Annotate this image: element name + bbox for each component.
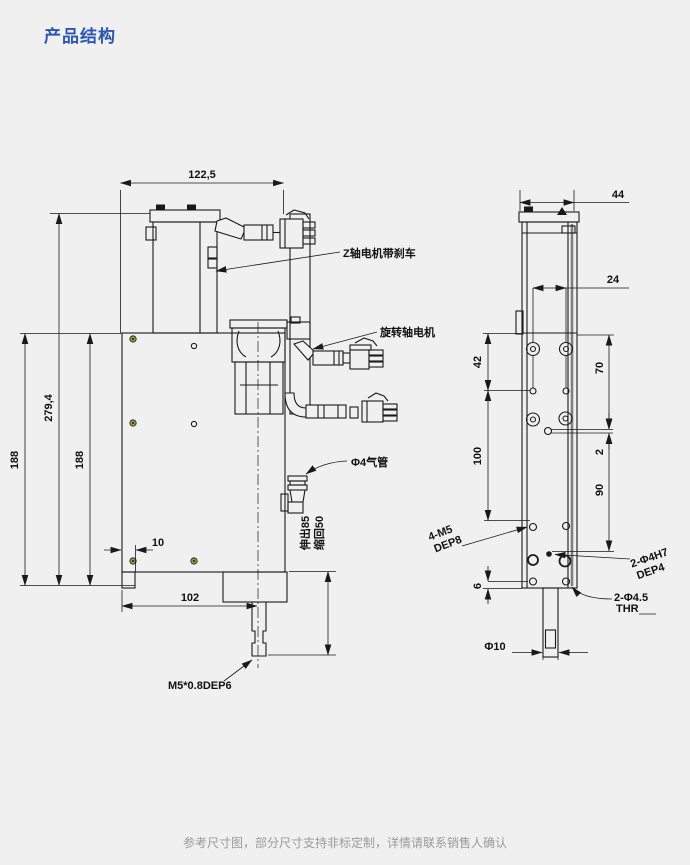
svg-text:188: 188 <box>74 451 86 469</box>
front-label-z-motor: Z轴电机带刹车 <box>216 246 416 271</box>
front-view: 122,5 188 279,4 188 10 <box>9 169 435 692</box>
svg-text:旋转轴电机: 旋转轴电机 <box>379 325 435 339</box>
side-dim-right-stack: 70 2 90 <box>552 335 614 552</box>
page: 产品结构 <box>0 0 690 865</box>
svg-text:102: 102 <box>181 592 199 604</box>
svg-text:279,4: 279,4 <box>43 393 55 421</box>
svg-text:44: 44 <box>612 189 625 201</box>
side-sensor-pin <box>545 428 614 435</box>
svg-text:缩回50: 缩回50 <box>312 516 326 550</box>
side-body <box>522 222 577 588</box>
svg-text:24: 24 <box>607 274 620 286</box>
front-label-shaft-thread: M5*0.8DEP6 <box>168 660 252 692</box>
svg-text:THR: THR <box>616 603 639 615</box>
svg-text:2: 2 <box>594 449 606 455</box>
front-label-rotary-motor: 旋转轴电机 <box>313 325 435 349</box>
side-dim-width-top: 44 <box>520 189 629 211</box>
front-dim-offset-left: 10 <box>104 537 164 572</box>
side-dim-shaft-dia: Φ10 <box>484 641 588 660</box>
front-dim-width-top: 122,5 <box>121 169 284 333</box>
side-label-thru-holes: 2-Φ4.5 THR <box>572 587 656 615</box>
svg-text:6: 6 <box>472 583 484 589</box>
front-z-motor-cable <box>215 210 315 248</box>
side-holes <box>527 343 573 586</box>
svg-text:90: 90 <box>594 484 606 496</box>
svg-text:Z轴电机带刹车: Z轴电机带刹车 <box>343 246 416 260</box>
front-dim-width-bottom: 102 <box>122 590 257 612</box>
technical-drawing: 122,5 188 279,4 188 10 <box>0 0 690 810</box>
svg-text:42: 42 <box>472 356 484 368</box>
front-dim-stroke: 伸出85 缩回50 <box>268 516 336 655</box>
side-top-cap <box>519 212 579 222</box>
front-rotary-motor <box>230 317 310 414</box>
side-dim-bottom-offset: 6 <box>472 566 528 604</box>
front-shaft <box>252 602 266 656</box>
svg-text:M5*0.8DEP6: M5*0.8DEP6 <box>168 680 232 692</box>
front-label-air-tube: Φ4气管 <box>306 455 388 474</box>
side-label-tap-holes: 4-M5 DEP8 <box>427 522 527 556</box>
front-dim-left-stack: 188 279,4 188 <box>9 214 150 586</box>
svg-text:伸出85: 伸出85 <box>298 516 312 551</box>
front-mounting-holes <box>130 336 197 564</box>
front-rotary-cables <box>285 338 397 422</box>
svg-text:Φ4气管: Φ4气管 <box>351 455 388 469</box>
svg-text:100: 100 <box>472 447 484 465</box>
front-main-plate <box>122 333 285 572</box>
side-datum-triangle <box>557 207 567 215</box>
svg-text:188: 188 <box>9 451 21 469</box>
svg-text:122,5: 122,5 <box>188 169 216 181</box>
front-carriage-block <box>223 572 287 602</box>
svg-text:70: 70 <box>594 362 606 374</box>
svg-text:10: 10 <box>152 537 164 549</box>
side-view: 44 24 42 100 <box>427 189 674 660</box>
side-dim-left-stack: 42 100 <box>472 334 530 521</box>
footer-note: 参考尺寸图，部分尺寸支持非标定制，详情请联系销售人确认 <box>0 834 690 851</box>
svg-text:Φ10: Φ10 <box>484 641 505 653</box>
